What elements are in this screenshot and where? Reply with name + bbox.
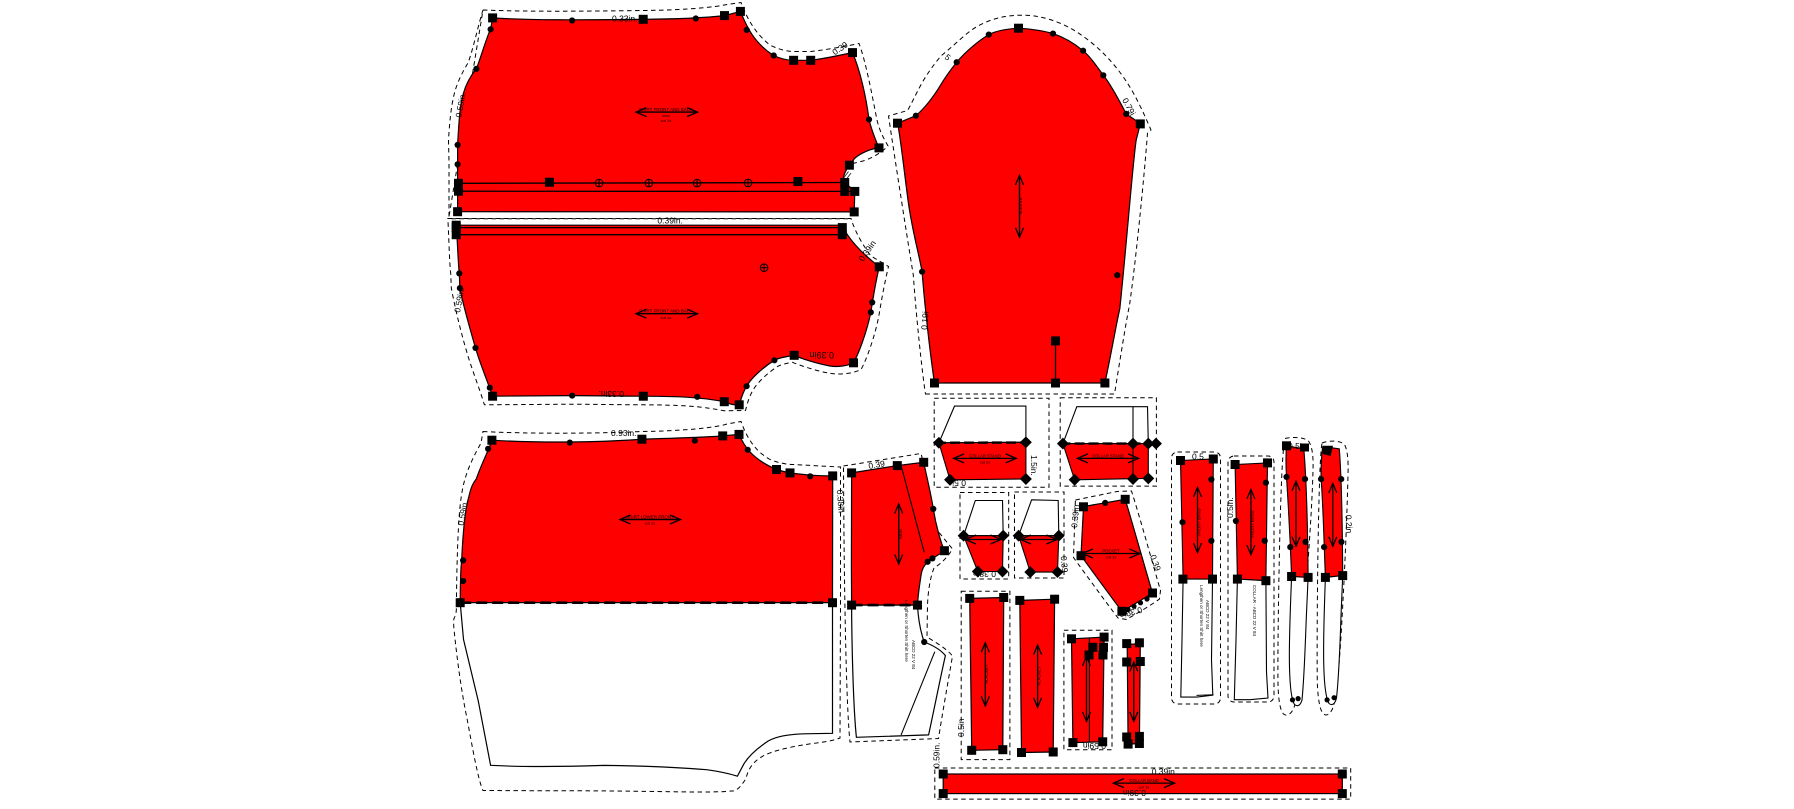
svg-text:0.39in.: 0.39in. xyxy=(657,216,683,226)
svg-text:COLLAR STAND: COLLAR STAND xyxy=(1092,453,1124,458)
svg-text:SIDE: SIDE xyxy=(898,529,903,540)
svg-text:SHIRT FRONT AND BACK: SHIRT FRONT AND BACK xyxy=(639,309,693,314)
svg-text:PLACKET: PLACKET xyxy=(1037,666,1042,686)
svg-text:0.39in: 0.39in xyxy=(809,350,834,360)
svg-text:cut 1x: cut 1x xyxy=(661,315,672,320)
svg-text:0.5: 0.5 xyxy=(1192,452,1204,462)
svg-text:0.5in.: 0.5in. xyxy=(1225,497,1235,518)
svg-text:ABCD 22 V 84: ABCD 22 V 84 xyxy=(911,640,916,670)
svg-text:0.59in: 0.59in xyxy=(1083,741,1106,751)
svg-text:0.38in: 0.38in xyxy=(835,489,847,513)
svg-text:0.5in: 0.5in xyxy=(1288,441,1307,451)
svg-text:0.5in: 0.5in xyxy=(947,478,966,488)
svg-text:Lengthen or Shorten Shirt here: Lengthen or Shorten Shirt here xyxy=(904,600,909,662)
svg-text:0.2in: 0.2in xyxy=(1344,515,1355,534)
svg-text:ABCD 22 V 84: ABCD 22 V 84 xyxy=(1205,600,1210,630)
svg-text:0.19i: 0.19i xyxy=(919,311,931,330)
svg-text:cut 1x: cut 1x xyxy=(1106,555,1117,560)
svg-text:COLLAR BAND: COLLAR BAND xyxy=(1129,778,1159,783)
svg-text:0.59in.: 0.59in. xyxy=(932,742,942,768)
svg-text:PLACKET: PLACKET xyxy=(984,664,989,684)
svg-text:0.5in: 0.5in xyxy=(956,718,966,737)
svg-text:0.33in.: 0.33in. xyxy=(612,14,638,24)
svg-text:0.39: 0.39 xyxy=(1059,556,1070,574)
svg-text:0.39in.: 0.39in. xyxy=(1152,767,1178,777)
svg-text:cut 1x: cut 1x xyxy=(661,118,672,123)
svg-text:0.39in: 0.39in xyxy=(1123,788,1146,798)
svg-text:0.33in.: 0.33in. xyxy=(598,389,624,399)
svg-text:SHIRT LOWER FRONT: SHIRT LOWER FRONT xyxy=(626,515,674,520)
svg-text:0.93in.: 0.93in. xyxy=(611,428,637,438)
svg-text:SHIRT FRONT AND BACK: SHIRT FRONT AND BACK xyxy=(639,107,693,112)
svg-text:COLLAR - ABCD 22 V 84: COLLAR - ABCD 22 V 84 xyxy=(1252,585,1257,637)
svg-text:1.5in.: 1.5in. xyxy=(1029,455,1039,476)
svg-text:FRONT BAND: FRONT BAND xyxy=(1250,510,1255,537)
svg-text:POCKET: POCKET xyxy=(1102,549,1120,554)
svg-text:Lengthen or Shorten Shirt here: Lengthen or Shorten Shirt here xyxy=(1199,585,1204,647)
svg-text:COLLAR STAND: COLLAR STAND xyxy=(969,453,1001,458)
svg-text:FRONT BAND: FRONT BAND xyxy=(1197,508,1202,535)
svg-text:0.38in: 0.38in xyxy=(973,569,996,579)
svg-text:cut 1x: cut 1x xyxy=(645,521,656,526)
svg-text:0.39in: 0.39in xyxy=(1069,504,1081,528)
svg-text:cut 2x: cut 2x xyxy=(980,459,991,464)
svg-text:SLEEVE: SLEEVE xyxy=(1018,197,1023,215)
